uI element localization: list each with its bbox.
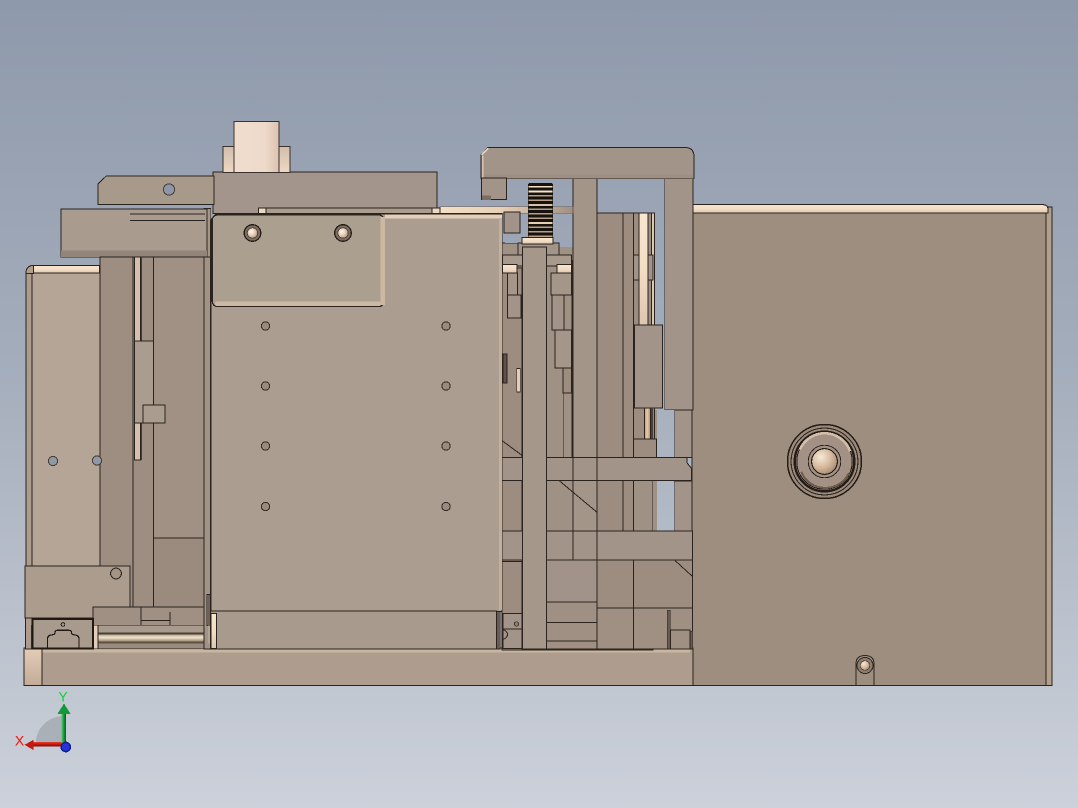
- svg-text:X: X: [15, 733, 25, 749]
- svg-text:Y: Y: [58, 689, 68, 705]
